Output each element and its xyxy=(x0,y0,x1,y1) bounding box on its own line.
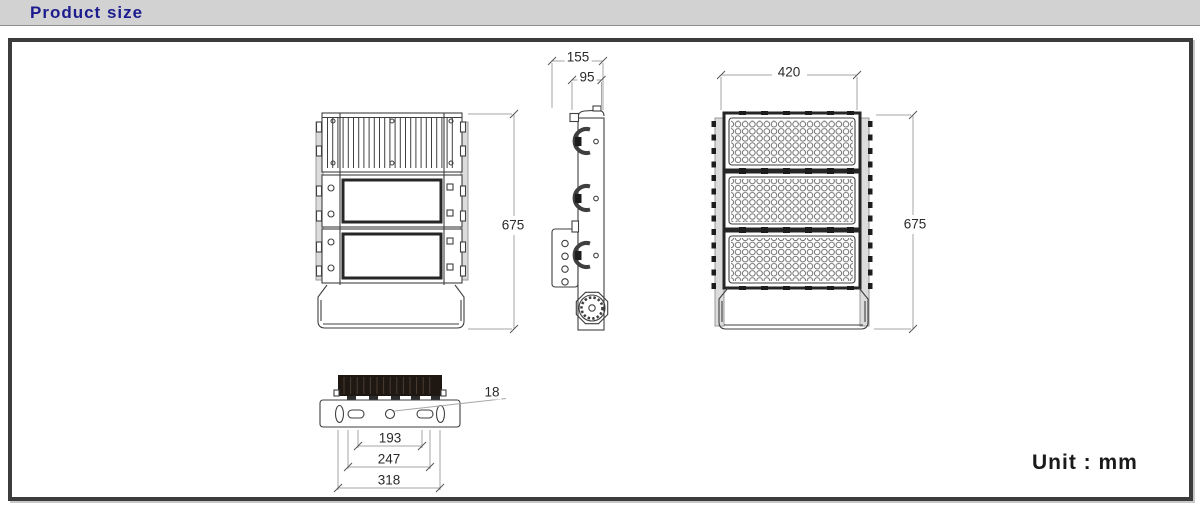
dim-label-side-body-width: 95 xyxy=(577,70,596,85)
heatsink-feet xyxy=(347,396,440,400)
mounting-bracket-front xyxy=(719,288,868,329)
unit-label: Unit : mm xyxy=(1032,451,1138,475)
dim-label-side-total-width: 155 xyxy=(565,50,592,65)
led-module xyxy=(724,231,860,288)
bracket-bar xyxy=(320,400,460,427)
dim-label-hole-diameter: 18 xyxy=(482,385,501,400)
bottom-view-drawing xyxy=(320,375,460,427)
technical-drawing xyxy=(0,0,1200,507)
front-view-drawing xyxy=(712,111,873,329)
dim-label-front-height: 675 xyxy=(902,217,929,232)
dim-label-back-height: 675 xyxy=(500,218,527,233)
mounting-bracket-back xyxy=(318,285,464,328)
side-view-drawing xyxy=(552,106,608,330)
led-module xyxy=(724,172,860,229)
back-view-drawing xyxy=(316,113,468,328)
dim-label-slot-spacing: 193 xyxy=(377,431,404,446)
dim-label-bracket-width: 318 xyxy=(376,473,403,488)
dim-label-slot-outer-spacing: 247 xyxy=(376,452,403,467)
led-module xyxy=(724,113,860,170)
dim-label-front-width: 420 xyxy=(776,65,803,80)
